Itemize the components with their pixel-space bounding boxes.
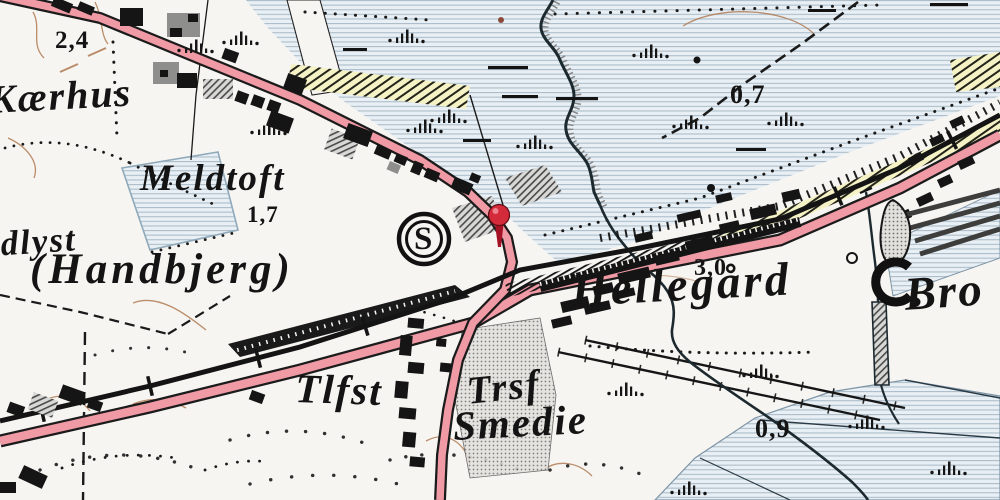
label-bro: Bro bbox=[903, 266, 985, 318]
label-tlfst: Tlfst bbox=[295, 368, 384, 412]
spot-height-09: 0,9 bbox=[755, 416, 791, 442]
label-handbjerg: (Handbjerg) bbox=[30, 248, 294, 291]
spot-height-07: 0,7 bbox=[730, 82, 766, 108]
label-kaerhus: Kærhus bbox=[0, 73, 133, 120]
label-meldtoft: Meldtoft bbox=[140, 160, 285, 197]
spot-height-30: 3,0 bbox=[694, 256, 727, 280]
label-hellegaard: Hellegård bbox=[570, 256, 792, 314]
spot-height-24: 2,4 bbox=[55, 28, 89, 53]
station-letter: S bbox=[414, 223, 432, 256]
spot-height-17: 1,7 bbox=[247, 203, 279, 226]
map-canvas[interactable]: Kærhus 2,4 Meldtoft 1,7 ndlyst (Handbjer… bbox=[0, 0, 1000, 500]
label-smedie: Smedie bbox=[452, 399, 589, 447]
